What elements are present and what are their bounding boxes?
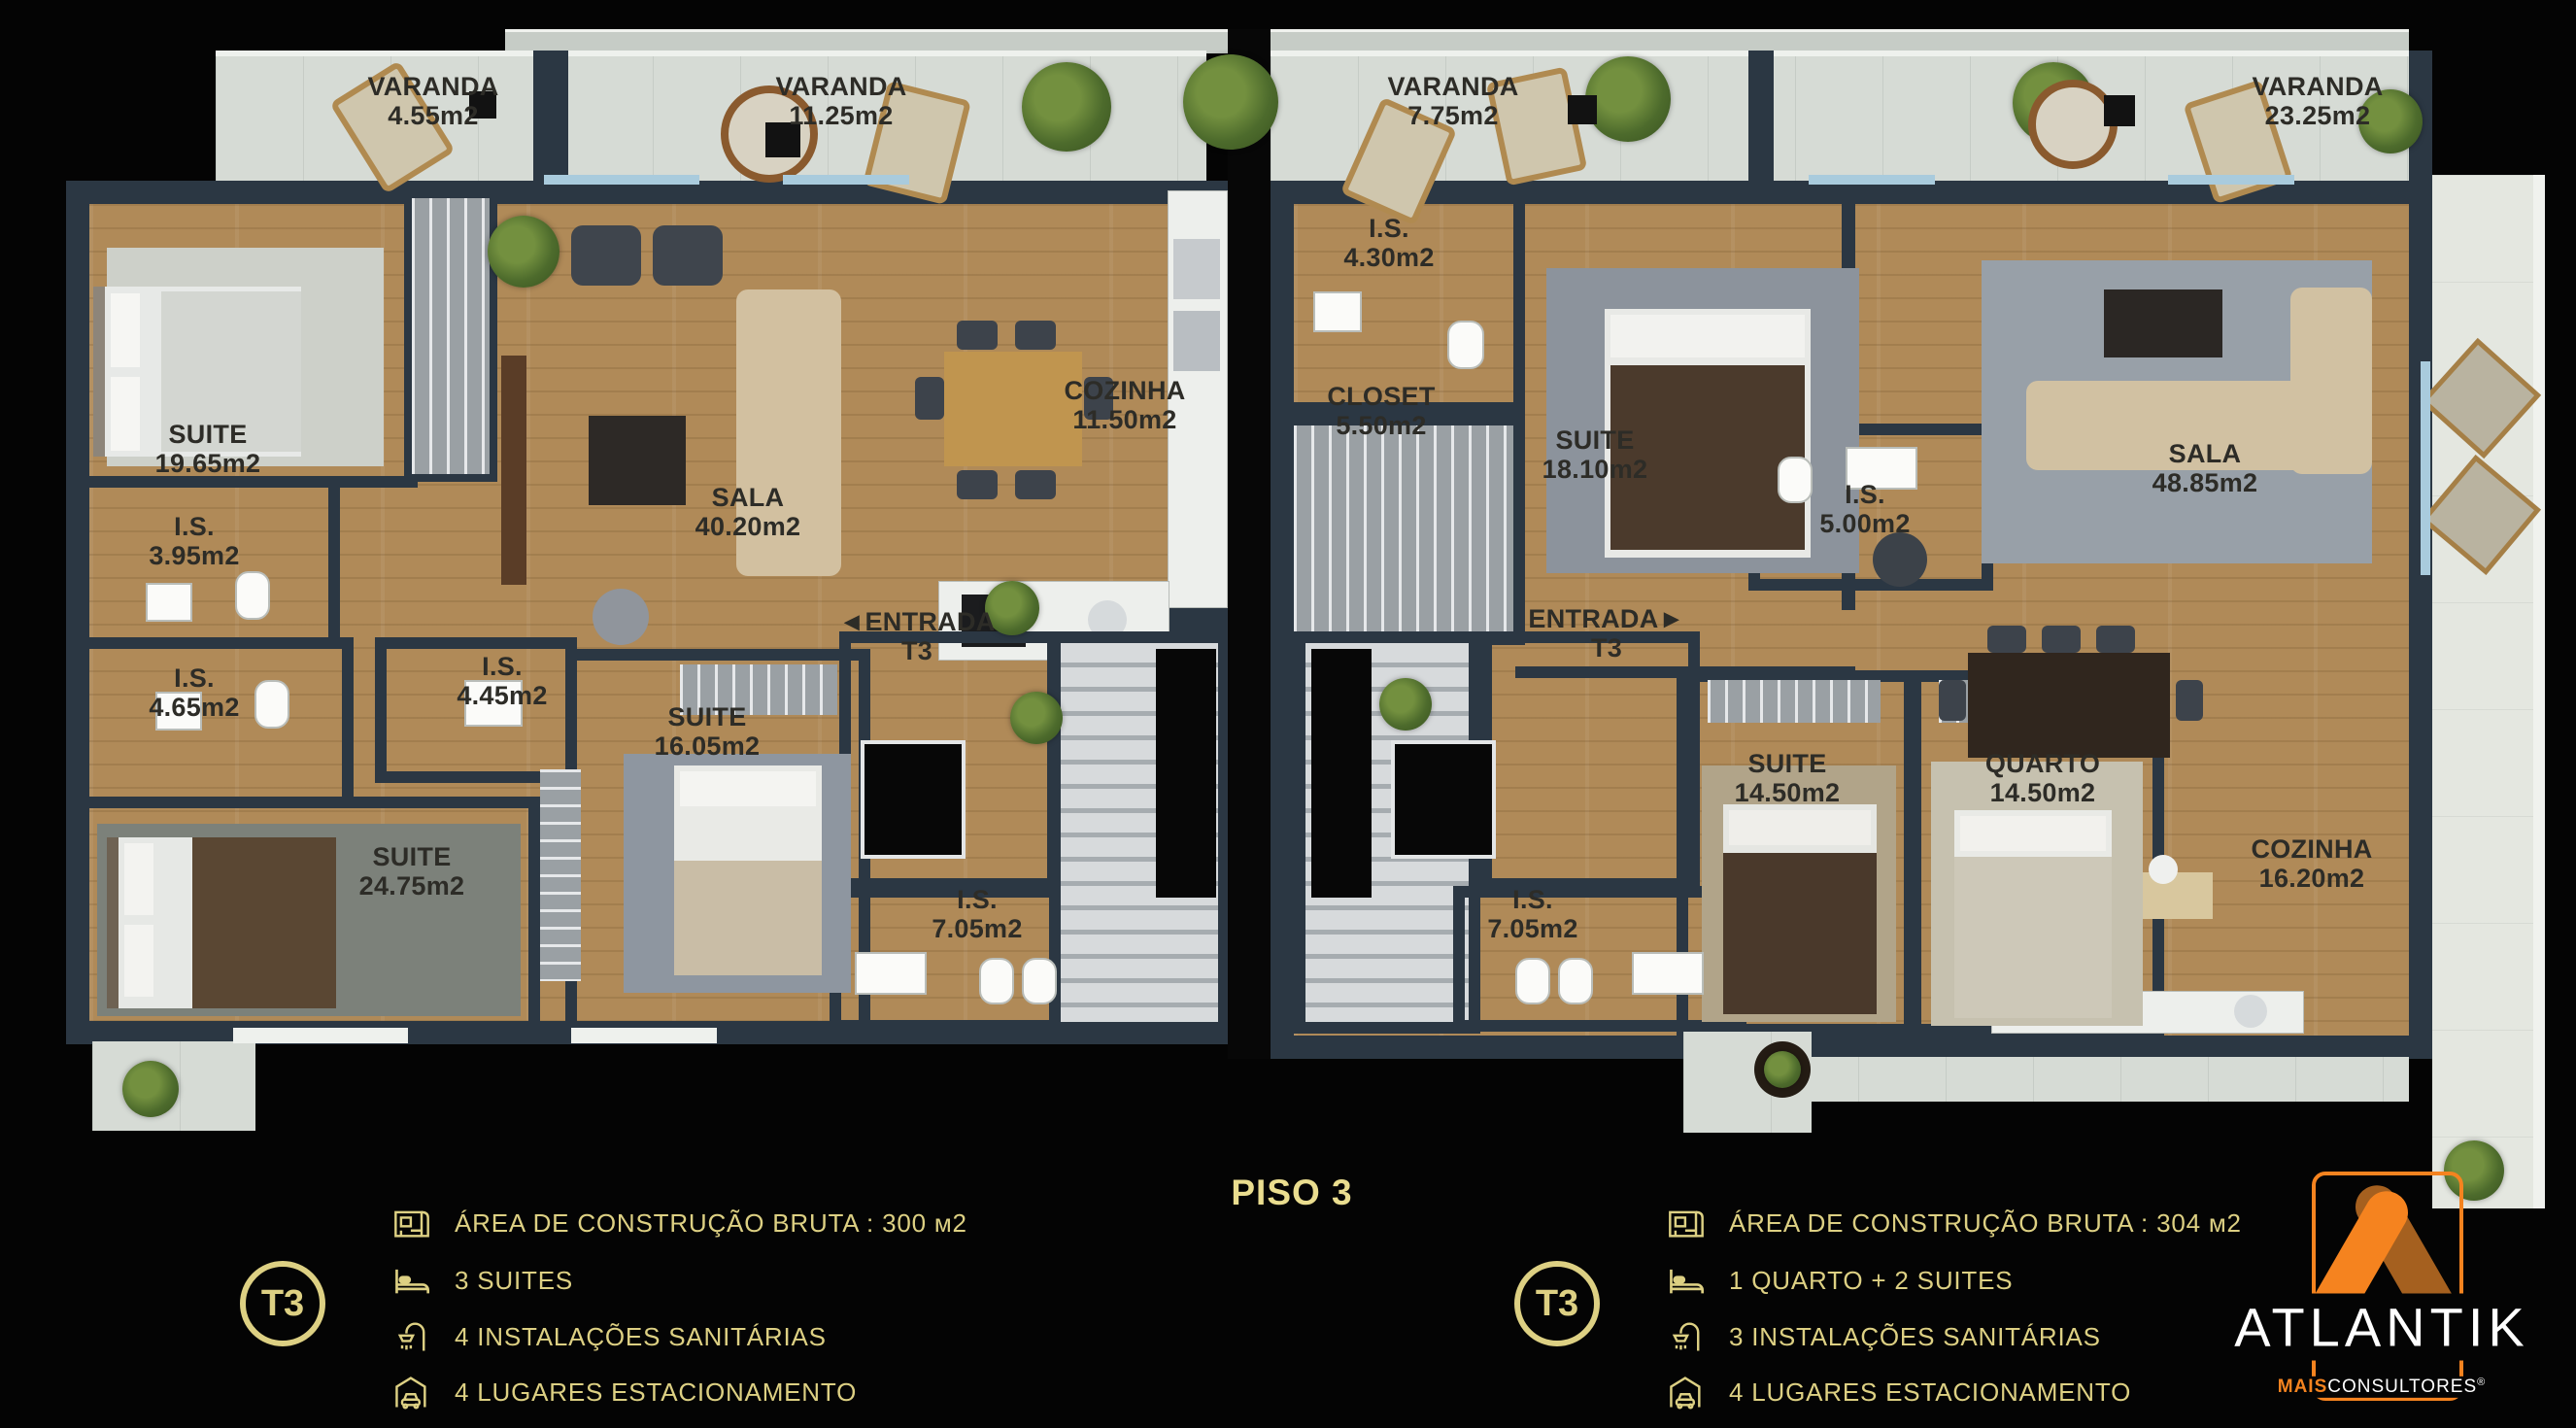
room-name: SUITE [667,702,746,731]
room-area: 18.10m2 [1542,455,1648,484]
blueprint-icon [390,1205,433,1241]
room-area: 19.65m2 [155,449,261,478]
room-label: SALA48.85m2 [2152,439,2258,497]
room-name: SUITE [168,420,247,449]
toilet [1447,321,1484,369]
room-area: 14.50m2 [1735,778,1841,807]
room-label: SUITE24.75m2 [359,842,465,901]
legend-item: ÁREA DE CONSTRUÇÃO BRUTA : 304 м2 [1665,1205,2242,1241]
room-area: 7.05m2 [932,914,1022,943]
bed-blanket [192,837,336,1008]
page-title: PISO 3 [1231,1173,1352,1213]
shower-icon [390,1318,433,1355]
plant [1183,54,1278,150]
room-label: VARANDA7.75m2 [1387,72,1518,130]
dining-table [944,352,1082,466]
arrow-right-icon: ► [1659,604,1685,633]
sink [2234,995,2267,1028]
wall-segment [1748,51,1774,181]
washbasin [1313,291,1362,332]
room-area: 3.95m2 [149,541,239,570]
toilet [1778,457,1813,503]
elevator-shaft [861,740,966,859]
chair [1015,321,1056,350]
legend-label: 4 LUGARES ESTACIONAMENTO [455,1377,857,1408]
room-name: VARANDA [1387,72,1518,101]
room-area: 16.20m2 [2259,864,2365,893]
legend-label: 3 INSTALAÇÕES SANITÁRIAS [1729,1322,2101,1352]
chair [915,377,944,420]
chair [957,470,998,499]
room-area: 4.55m2 [388,101,478,130]
chair [1939,680,1966,721]
legend-item: 4 INSTALAÇÕES SANITÁRIAS [390,1318,827,1355]
plant [1379,678,1432,731]
room-name: VARANDA [775,72,906,101]
room-name: SUITE [1555,425,1634,455]
room-label: I.S.3.95m2 [149,512,239,570]
room-area: 11.25m2 [789,101,893,130]
room-name: I.S. [174,512,215,541]
media-table [2104,289,2222,357]
toilet [235,571,270,620]
legend-item: 1 QUARTO + 2 SUITES [1665,1262,2013,1299]
bidet [1022,958,1057,1004]
unit-type-badge: T3 [1514,1261,1600,1346]
pillow [1729,810,1871,845]
room-area: 40.20m2 [695,512,801,541]
wardrobe [404,190,497,482]
stair-void [1156,649,1216,898]
legend-label: 4 INSTALAÇÕES SANITÁRIAS [455,1322,827,1352]
room-label: SALA40.20m2 [695,483,801,541]
brand-sub-rest: CONSULTORES [2327,1377,2477,1397]
pillow [124,843,153,915]
appliance [1173,239,1220,299]
room-label: I.S.4.45m2 [457,652,547,710]
pouf [1873,532,1927,587]
badge-label: T3 [261,1283,304,1325]
tv-sideboard [501,356,526,585]
brand-sub-bold: MAIS [2278,1377,2328,1397]
room-name: SALA [712,483,785,512]
room-label: COZINHA11.50m2 [1064,376,1185,434]
legend-item: ÁREA DE CONSTRUÇÃO BRUTA : 300 м2 [390,1205,967,1241]
room-area: 16.05m2 [655,731,761,761]
wall-segment [533,51,568,181]
brand-subtitle: MAISCONSULTORES® [2270,1377,2494,1398]
legend-label: 1 QUARTO + 2 SUITES [1729,1266,2013,1296]
room-label: COZINHA16.20m2 [2251,834,2372,893]
bed-headboard [107,837,119,1008]
room-label: VARANDA23.25m2 [2252,72,2383,130]
chair [1015,470,1056,499]
washbasin [146,583,192,622]
bed-headboard [93,287,105,457]
room-label: I.S.7.05m2 [1487,885,1577,943]
bed-blanket [674,861,822,975]
room-name: SUITE [1747,749,1826,778]
room-label: SUITE18.10m2 [1542,425,1648,484]
room-name: I.S. [1845,480,1885,509]
legend-item: 4 LUGARES ESTACIONAMENTO [390,1374,857,1411]
entrance-name: ENTRADA [864,607,995,636]
bed-blanket [1954,857,2112,1018]
legend-label: 4 LUGARES ESTACIONAMENTO [1729,1377,2131,1408]
blueprint-icon [1665,1205,1708,1241]
plant [488,216,559,288]
sofa-chaise [2290,288,2372,474]
wardrobe [540,769,581,981]
vanity [1632,952,1704,995]
legend-label: 3 SUITES [455,1266,573,1296]
room-name: CLOSET [1327,382,1435,411]
legend-item: 3 INSTALAÇÕES SANITÁRIAS [1665,1318,2101,1355]
room-name: I.S. [482,652,523,681]
room-label: VARANDA4.55m2 [367,72,498,130]
chair [2042,626,2081,653]
room-name: VARANDA [2252,72,2383,101]
room-area: 5.00m2 [1819,509,1910,538]
planter-box [2104,95,2135,126]
room-label: CLOSET5.50m2 [1327,382,1435,440]
entrance-unit: T3 [1591,633,1622,663]
car-icon [1665,1374,1708,1411]
bed-icon [390,1262,433,1299]
elevator-shaft [1391,740,1496,859]
room-name: COZINHA [1064,376,1185,405]
room-area: 48.85m2 [2152,468,2258,497]
room-name: I.S. [957,885,998,914]
entrance-name: ENTRADA [1528,604,1658,633]
plant [1585,56,1671,142]
legend-item: 4 LUGARES ESTACIONAMENTO [1665,1374,2131,1411]
pouf [593,589,649,645]
room-label: SUITE14.50m2 [1735,749,1841,807]
glass-door [783,175,909,185]
legend-label: ÁREA DE CONSTRUÇÃO BRUTA : 300 м2 [455,1208,967,1239]
glass-door [2168,175,2294,185]
stool [2149,855,2178,884]
brand-name: ATLANTIK [2224,1294,2538,1361]
room-area: 23.25m2 [2265,101,2371,130]
armchair [571,225,641,286]
room-area: 4.30m2 [1343,243,1434,272]
room-area: 5.50m2 [1336,411,1426,440]
legend-item: 3 SUITES [390,1262,573,1299]
room-label: I.S.4.30m2 [1343,214,1434,272]
pillow [1610,315,1805,357]
appliance [1173,311,1220,371]
terrace-parapet [2533,175,2545,1208]
room-name: QUARTO [1985,749,2100,778]
coffee-table [589,416,686,505]
pillow [1960,816,2106,851]
room-name: COZINHA [2251,834,2372,864]
room-label: I.S.7.05m2 [932,885,1022,943]
glass-door [1809,175,1935,185]
plant [122,1061,179,1117]
legend-label: ÁREA DE CONSTRUÇÃO BRUTA : 304 м2 [1729,1208,2242,1239]
room-label: VARANDA11.25m2 [775,72,906,130]
room-name: I.S. [1512,885,1553,914]
room-area: 4.65m2 [149,693,239,722]
room-label: QUARTO14.50m2 [1985,749,2100,807]
planter-box [1568,95,1597,124]
stair-void [1311,649,1372,898]
room-label: SUITE16.05m2 [655,702,761,761]
chair [2096,626,2135,653]
bed-icon [1665,1262,1708,1299]
entrance-label: ◄ENTRADAT3 [838,607,995,665]
pillow [680,771,816,806]
room-name: I.S. [1369,214,1409,243]
pillow [111,293,140,367]
shower-icon [1665,1318,1708,1355]
plant [1022,62,1111,152]
car-icon [390,1374,433,1411]
plant [1010,692,1063,744]
room-name: VARANDA [367,72,498,101]
room-label: I.S.5.00m2 [1819,480,1910,538]
room-label: I.S.4.65m2 [149,663,239,722]
party-wall-band [1228,29,1271,1059]
room-area: 14.50m2 [1990,778,2096,807]
pillow [124,925,153,997]
chair [2176,680,2203,721]
registered-mark: ® [2477,1377,2486,1388]
plant [1764,1051,1801,1088]
entry-hall [1480,631,1700,890]
entrance-unit: T3 [901,636,932,665]
window-sill [233,1028,408,1043]
bidet [1558,958,1593,1004]
closet-room [1282,414,1525,645]
vanity [855,952,927,995]
window-sill [571,1028,717,1043]
arrow-left-icon: ◄ [838,607,864,636]
room-area: 7.05m2 [1487,914,1577,943]
bed-blanket [1723,853,1877,1014]
toilet [254,680,289,729]
toilet [1515,958,1550,1004]
wardrobe [1708,680,1881,723]
room-name: SUITE [372,842,451,871]
floor-plan-canvas: VARANDA4.55m2 VARANDA11.25m2 VARANDA7.75… [0,0,2576,1428]
glass-door [544,175,699,185]
badge-label: T3 [1536,1283,1578,1325]
pillow [111,377,140,451]
room-area: 4.45m2 [457,681,547,710]
room-area: 7.75m2 [1407,101,1498,130]
room-label: SUITE19.65m2 [155,420,261,478]
glass-door [2421,361,2430,575]
side-terrace [2432,175,2533,1208]
dining-table [1968,653,2170,758]
room-name: SALA [2169,439,2242,468]
unit-type-badge: T3 [240,1261,325,1346]
room-area: 24.75m2 [359,871,465,901]
chair [957,321,998,350]
toilet [979,958,1014,1004]
chair [1987,626,2026,653]
armchair [653,225,723,286]
entrance-label: ENTRADA►T3 [1528,604,1684,663]
room-area: 11.50m2 [1072,405,1176,434]
room-name: I.S. [174,663,215,693]
